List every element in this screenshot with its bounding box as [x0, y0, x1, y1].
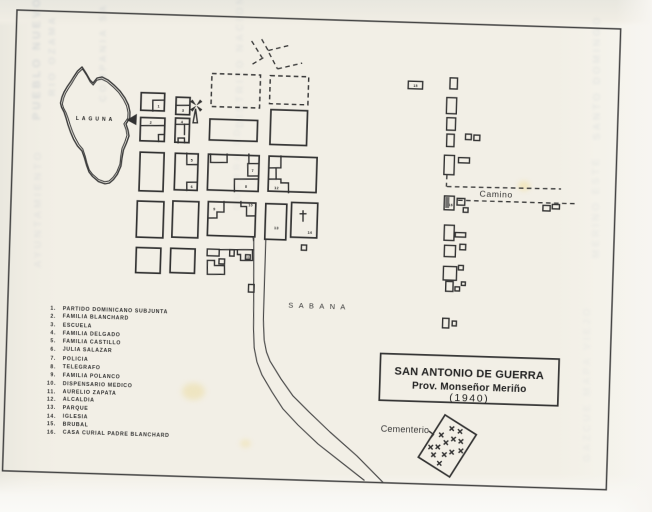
svg-text:6.: 6. — [50, 347, 56, 353]
svg-text:8.: 8. — [50, 364, 56, 370]
svg-text:3.: 3. — [50, 322, 56, 328]
svg-text:14: 14 — [307, 231, 312, 235]
svg-text:SANTO DOMINGO: SANTO DOMINGO — [592, 15, 603, 140]
svg-text:AYUNTAMIENTO: AYUNTAMIENTO — [32, 149, 44, 268]
svg-text:15: 15 — [413, 84, 417, 88]
svg-text:13.: 13. — [47, 405, 56, 411]
svg-text:7.: 7. — [50, 356, 56, 362]
svg-text:FAMILIA POLANCO: FAMILIA POLANCO — [63, 373, 121, 381]
svg-text:5: 5 — [191, 159, 193, 163]
svg-text:JULIA SALAZAR: JULIA SALAZAR — [63, 347, 113, 355]
svg-text:11: 11 — [246, 255, 250, 259]
svg-text:DISPENSARIO MEDICO: DISPENSARIO MEDICO — [63, 381, 133, 389]
svg-text:ALCALDIA: ALCALDIA — [63, 397, 95, 404]
svg-text:CASA CURIAL PADRE BLANCHARD: CASA CURIAL PADRE BLANCHARD — [63, 430, 170, 439]
svg-text:12.: 12. — [47, 397, 56, 403]
svg-text:IGLESIA: IGLESIA — [63, 414, 88, 421]
svg-text:16: 16 — [449, 203, 453, 207]
svg-text:13: 13 — [274, 226, 279, 230]
svg-text:2: 2 — [150, 121, 152, 125]
svg-text:7: 7 — [251, 169, 253, 173]
svg-text:PARQUE: PARQUE — [63, 405, 89, 412]
svg-text:BRUBAL: BRUBAL — [63, 422, 89, 429]
svg-text:14.: 14. — [47, 414, 56, 420]
svg-text:FAMILIA BLANCHARD: FAMILIA BLANCHARD — [63, 314, 129, 322]
svg-text:SABANA: SABANA — [288, 301, 351, 312]
svg-text:15.: 15. — [47, 421, 56, 427]
svg-text:5.: 5. — [50, 338, 56, 344]
svg-text:MERINO ESTE: MERINO ESTE — [591, 156, 602, 258]
svg-text:12: 12 — [274, 186, 279, 190]
svg-text:9: 9 — [213, 207, 215, 211]
svg-text:DISTRITO NACIONAL: DISTRITO NACIONAL — [235, 0, 246, 128]
svg-text:COMPANIA SA: COMPANIA SA — [98, 3, 109, 103]
svg-text:TELEGRAFO: TELEGRAFO — [63, 364, 101, 371]
svg-text:LAGUNA: LAGUNA — [76, 116, 116, 123]
svg-text:9.: 9. — [50, 372, 56, 378]
svg-text:1: 1 — [157, 105, 159, 109]
svg-text:AURELIO ZAPATA: AURELIO ZAPATA — [63, 389, 117, 397]
svg-text:1.: 1. — [50, 306, 56, 312]
svg-text:3: 3 — [182, 109, 184, 113]
svg-text:PUEBLO NUEVO: PUEBLO NUEVO — [31, 0, 43, 120]
svg-text:16.: 16. — [47, 430, 56, 436]
svg-text:POLICIA: POLICIA — [63, 356, 89, 363]
svg-text:6: 6 — [191, 185, 193, 189]
svg-text:8: 8 — [245, 185, 247, 189]
svg-text:ESCUELA: ESCUELA — [63, 322, 93, 329]
svg-text:10: 10 — [248, 203, 253, 207]
svg-text:2.: 2. — [50, 314, 56, 320]
svg-text:FAMILIA DELGADO: FAMILIA DELGADO — [63, 330, 121, 338]
svg-text:GAZCUE MAPA VIEJO: GAZCUE MAPA VIEJO — [582, 305, 593, 462]
svg-text:11.: 11. — [47, 389, 56, 395]
svg-text:RIO OZAMA: RIO OZAMA — [47, 15, 58, 96]
svg-text:GUERRA SD: GUERRA SD — [232, 126, 243, 210]
svg-text:10.: 10. — [47, 381, 56, 387]
svg-text:(1940): (1940) — [449, 392, 489, 405]
svg-text:FAMILIA CASTILLO: FAMILIA CASTILLO — [63, 339, 122, 347]
svg-text:4.: 4. — [50, 330, 56, 336]
svg-text:Cementerio: Cementerio — [381, 424, 430, 436]
svg-text:Camino: Camino — [479, 189, 513, 200]
